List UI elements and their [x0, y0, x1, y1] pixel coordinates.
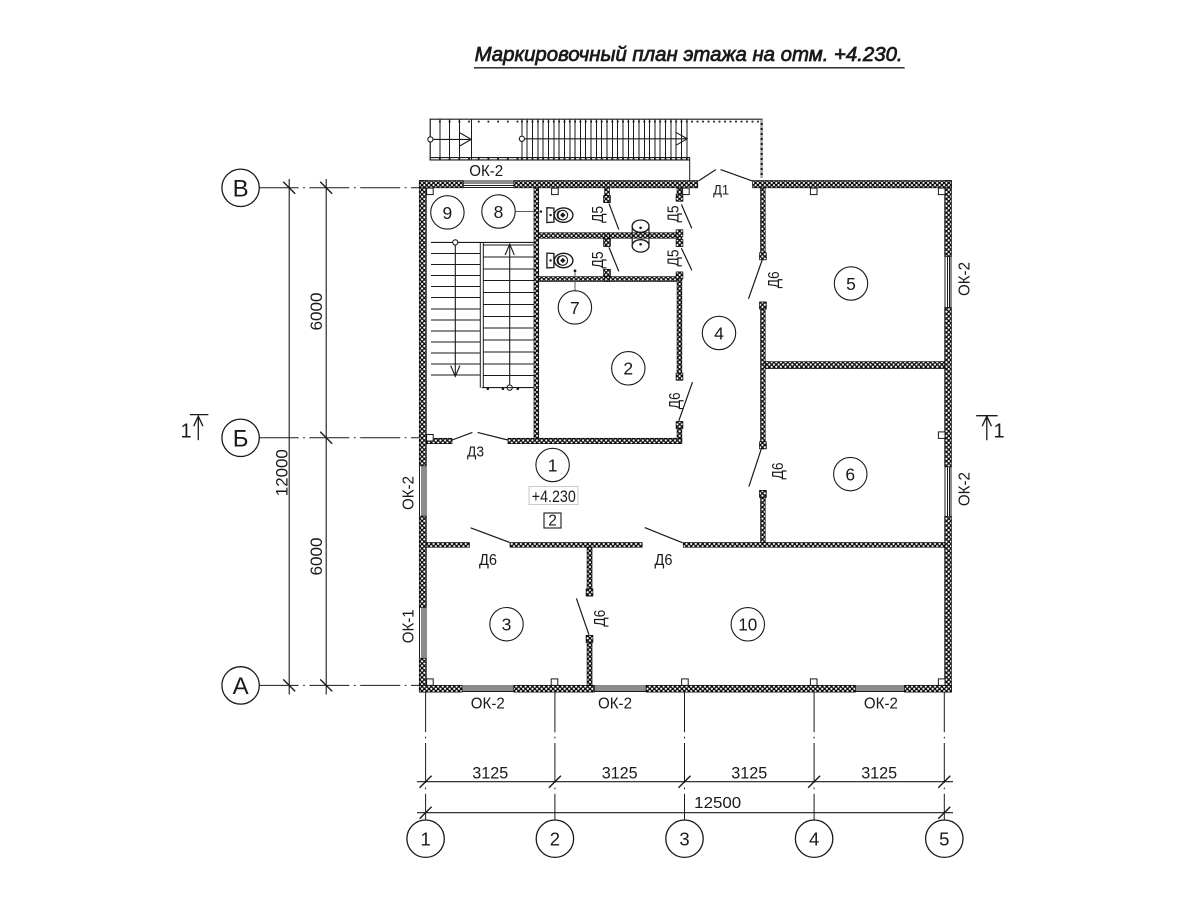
svg-text:Д5: Д5 — [665, 205, 682, 222]
svg-text:3125: 3125 — [472, 764, 508, 782]
svg-text:3125: 3125 — [602, 764, 638, 782]
svg-text:ОК-1: ОК-1 — [400, 609, 417, 643]
svg-text:4: 4 — [714, 323, 724, 343]
svg-text:2: 2 — [550, 828, 560, 849]
svg-text:1: 1 — [993, 421, 1004, 443]
svg-text:ОК-2: ОК-2 — [598, 696, 632, 713]
svg-text:Д1: Д1 — [713, 182, 729, 198]
svg-text:4: 4 — [809, 828, 819, 849]
svg-text:Д6: Д6 — [766, 271, 783, 288]
svg-text:3125: 3125 — [861, 764, 897, 782]
svg-text:3: 3 — [502, 615, 512, 635]
svg-text:1: 1 — [420, 828, 430, 849]
svg-text:Д5: Д5 — [590, 251, 607, 268]
svg-text:1: 1 — [180, 421, 191, 443]
svg-text:ОК-2: ОК-2 — [956, 262, 973, 296]
svg-text:9: 9 — [443, 203, 453, 223]
svg-text:В: В — [233, 176, 249, 203]
svg-text:+4.230: +4.230 — [532, 488, 576, 506]
svg-text:2: 2 — [548, 513, 557, 530]
svg-text:6000: 6000 — [308, 293, 326, 331]
svg-text:6000: 6000 — [308, 538, 326, 576]
svg-text:Д6: Д6 — [655, 552, 673, 569]
svg-text:1: 1 — [548, 455, 558, 475]
svg-text:Д6: Д6 — [667, 392, 684, 409]
svg-text:Д6: Д6 — [592, 610, 609, 627]
svg-text:ОК-2: ОК-2 — [864, 696, 898, 713]
svg-text:ОК-2: ОК-2 — [956, 472, 973, 506]
svg-text:Д3: Д3 — [467, 445, 484, 461]
svg-text:Д6: Д6 — [479, 552, 497, 569]
svg-text:12000: 12000 — [273, 449, 292, 496]
svg-text:5: 5 — [939, 828, 949, 849]
svg-text:ОК-2: ОК-2 — [471, 696, 505, 713]
svg-text:5: 5 — [846, 274, 856, 294]
svg-text:ОК-2: ОК-2 — [400, 476, 417, 510]
svg-text:Маркировочный план этажа на от: Маркировочный план этажа на отм. +4.230. — [475, 43, 903, 66]
svg-text:Д5: Д5 — [590, 206, 607, 223]
svg-text:6: 6 — [845, 465, 855, 485]
svg-text:ОК-2: ОК-2 — [469, 163, 503, 180]
svg-text:Д6: Д6 — [770, 462, 787, 479]
svg-text:3: 3 — [679, 828, 689, 849]
svg-text:10: 10 — [738, 615, 757, 635]
svg-text:12500: 12500 — [694, 795, 741, 812]
svg-text:А: А — [233, 673, 249, 700]
svg-text:Б: Б — [233, 426, 249, 453]
svg-text:2: 2 — [623, 359, 633, 379]
svg-text:3125: 3125 — [731, 764, 767, 782]
svg-text:7: 7 — [570, 298, 580, 318]
svg-text:8: 8 — [494, 202, 504, 222]
svg-text:Д5: Д5 — [665, 249, 682, 266]
